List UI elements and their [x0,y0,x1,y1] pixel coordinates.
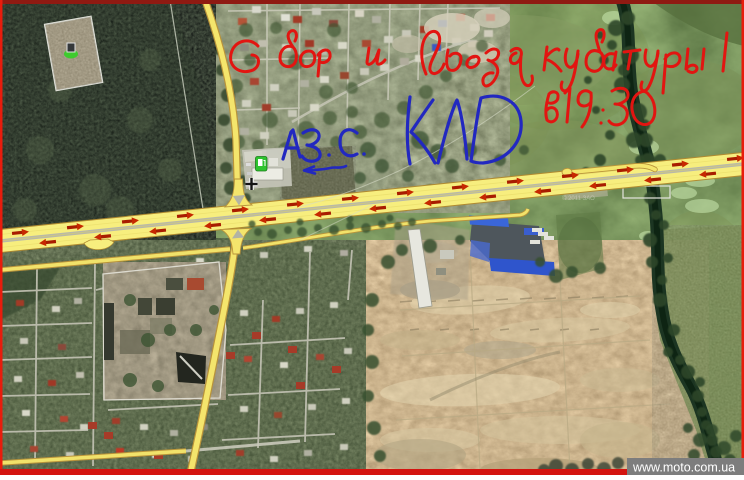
svg-text:www.moto.com.ua: www.moto.com.ua [632,461,735,475]
svg-text:© 2011 ЗАО: © 2011 ЗАО [562,195,595,202]
